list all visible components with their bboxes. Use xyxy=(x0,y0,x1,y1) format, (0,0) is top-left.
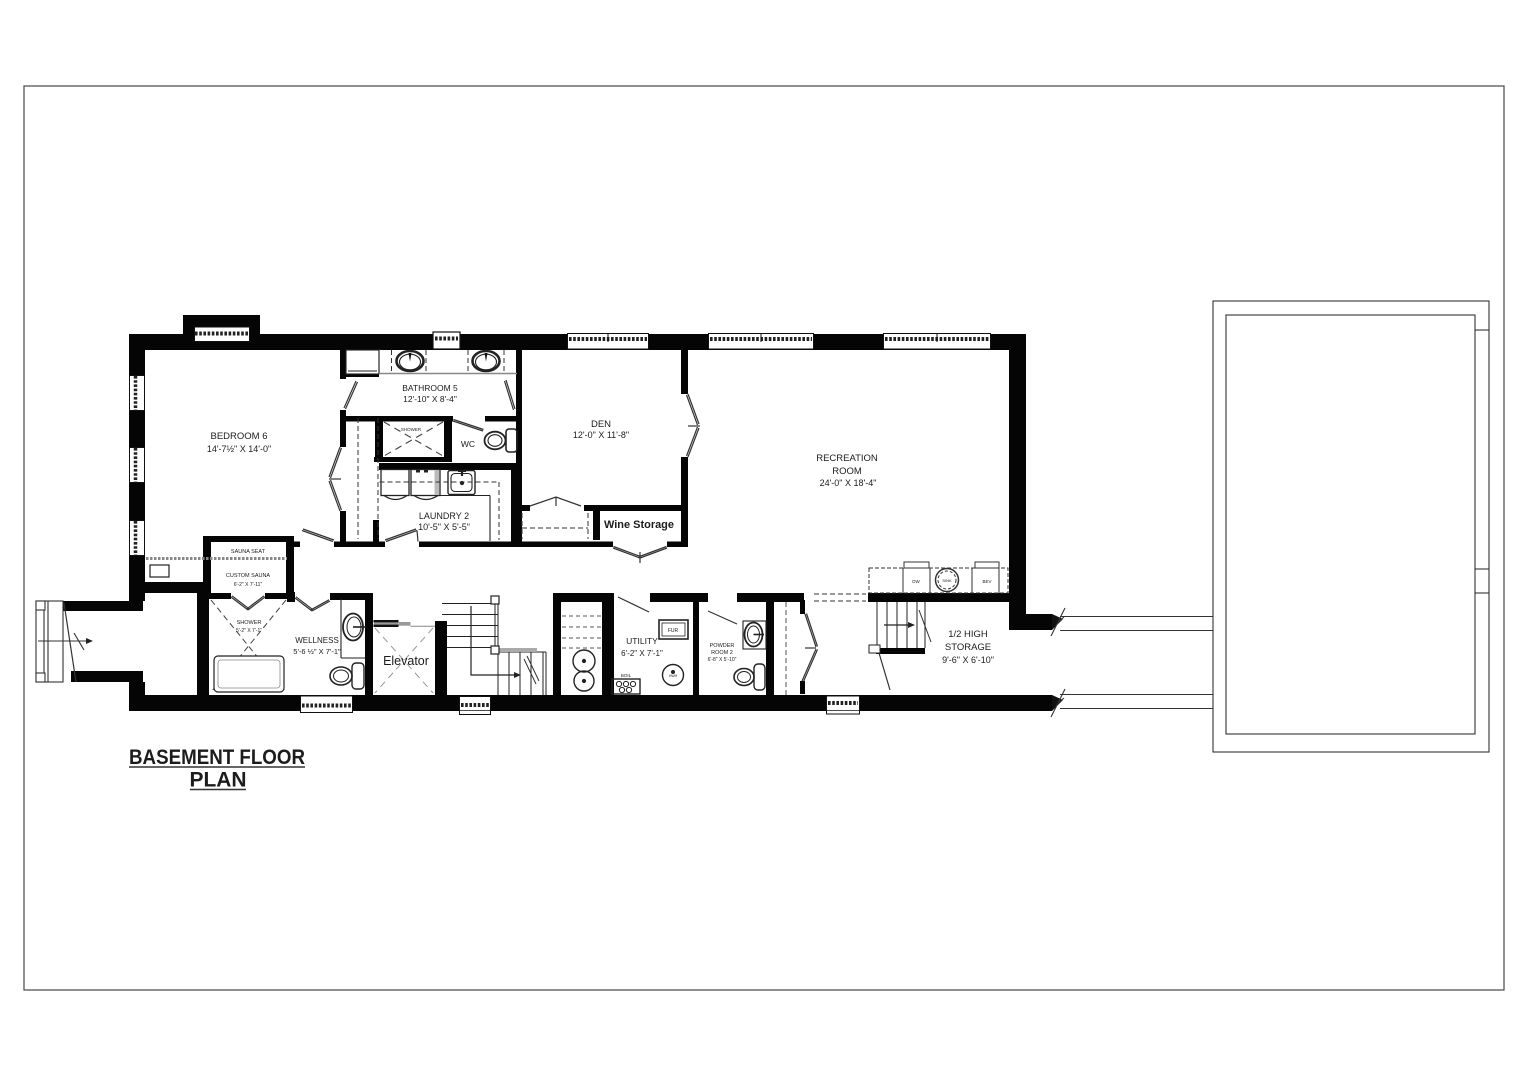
svg-text:BASEMENT FLOOR: BASEMENT FLOOR xyxy=(129,746,305,769)
svg-text:LAUNDRY 2: LAUNDRY 2 xyxy=(419,511,469,521)
svg-text:12'-0" X 11'-8": 12'-0" X 11'-8" xyxy=(573,430,629,440)
svg-text:SINK: SINK xyxy=(942,578,952,583)
svg-text:10'-5" X 5'-5": 10'-5" X 5'-5" xyxy=(418,522,470,532)
svg-text:14'-7½" X 14'-0": 14'-7½" X 14'-0" xyxy=(207,444,271,454)
svg-text:FUR: FUR xyxy=(668,628,679,634)
svg-text:HWH: HWH xyxy=(669,674,678,678)
svg-text:UTILITY: UTILITY xyxy=(626,636,658,646)
svg-text:9'-6" X 6'-10": 9'-6" X 6'-10" xyxy=(942,655,994,665)
svg-text:PLAN: PLAN xyxy=(190,769,247,792)
svg-text:6'-2" X 7'-11": 6'-2" X 7'-11" xyxy=(234,582,263,588)
svg-text:SAUNA SEAT: SAUNA SEAT xyxy=(231,549,266,555)
svg-text:RECREATION: RECREATION xyxy=(816,453,878,464)
svg-text:WELLNESS: WELLNESS xyxy=(295,636,339,645)
svg-text:SHOWER: SHOWER xyxy=(237,620,262,626)
svg-text:1/2 HIGH: 1/2 HIGH xyxy=(948,629,988,640)
svg-text:CUSTOM SAUNA: CUSTOM SAUNA xyxy=(226,573,271,579)
svg-text:BEDROOM 6: BEDROOM 6 xyxy=(210,431,267,442)
svg-text:SHOWER: SHOWER xyxy=(401,427,422,432)
svg-text:ROOM: ROOM xyxy=(832,466,862,477)
svg-text:BEV: BEV xyxy=(982,579,991,584)
svg-text:24'-0" X 18'-4": 24'-0" X 18'-4" xyxy=(820,478,877,488)
svg-text:Wine Storage: Wine Storage xyxy=(604,519,674,531)
svg-text:BOIL: BOIL xyxy=(621,673,632,678)
svg-text:6'-8" X 5'-10": 6'-8" X 5'-10" xyxy=(708,657,737,663)
svg-text:POWDER: POWDER xyxy=(710,643,735,649)
svg-text:DEN: DEN xyxy=(591,419,611,430)
svg-text:5'-6 ½" X 7'-1": 5'-6 ½" X 7'-1" xyxy=(293,647,341,656)
svg-text:BATHROOM 5: BATHROOM 5 xyxy=(402,383,458,393)
svg-text:DW: DW xyxy=(912,579,920,584)
svg-text:5'-2" X 7'-1": 5'-2" X 7'-1" xyxy=(236,628,262,634)
svg-text:WC: WC xyxy=(461,439,475,449)
svg-text:STORAGE: STORAGE xyxy=(945,642,991,653)
svg-text:Elevator: Elevator xyxy=(383,654,429,668)
svg-text:6'-2" X 7'-1": 6'-2" X 7'-1" xyxy=(621,649,663,658)
svg-text:12'-10" X 8'-4": 12'-10" X 8'-4" xyxy=(403,394,457,404)
svg-text:ROOM 2: ROOM 2 xyxy=(711,650,733,656)
